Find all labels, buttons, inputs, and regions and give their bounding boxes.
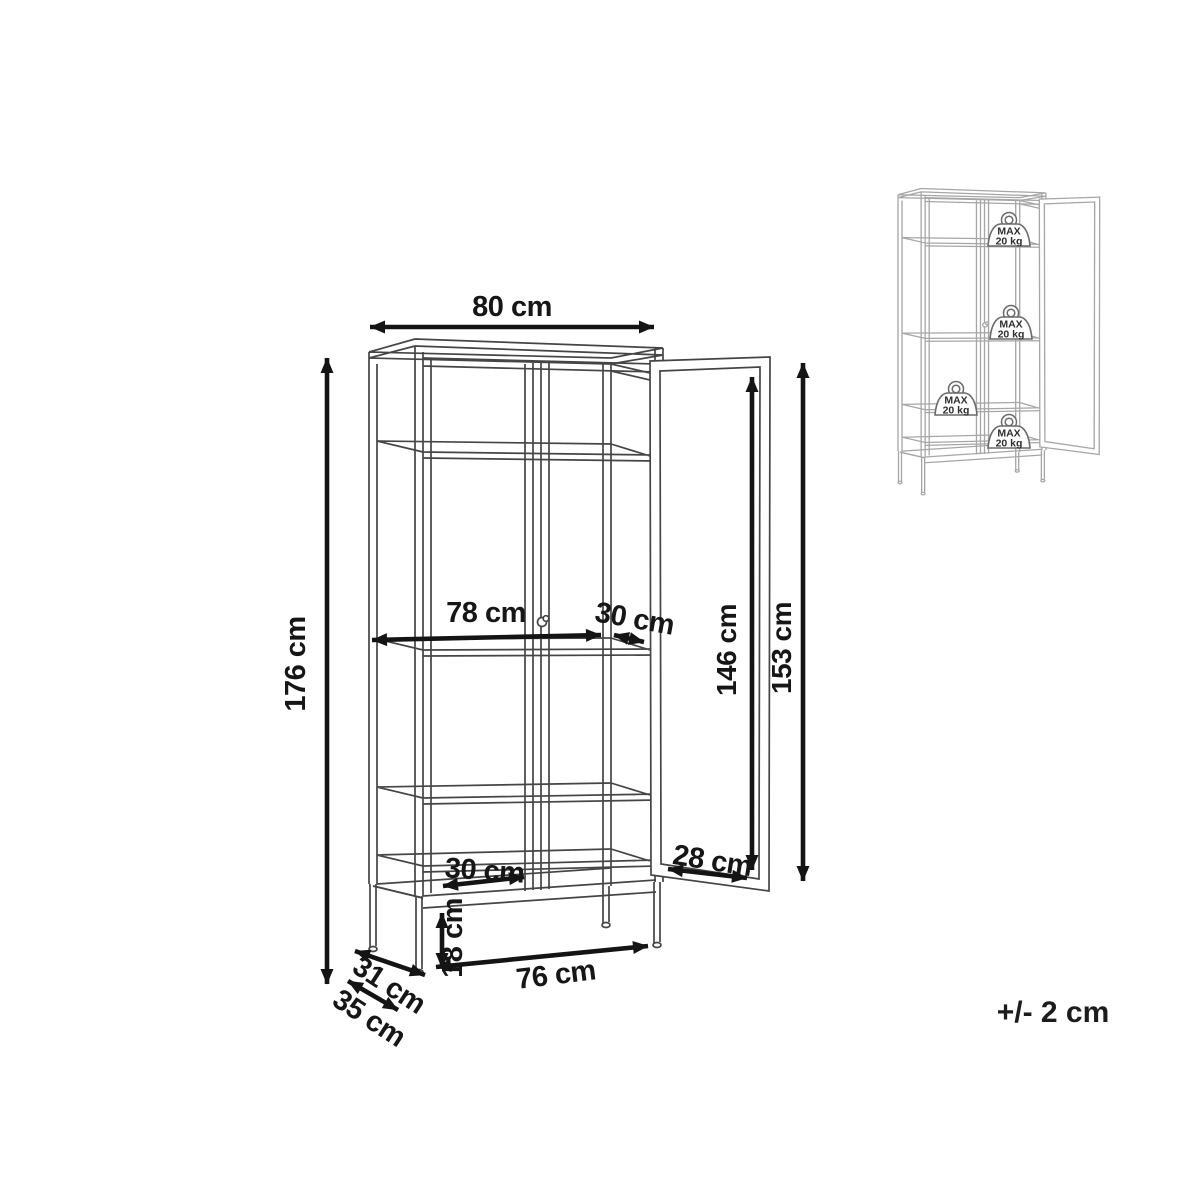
dimension-interior-width: 78 cm (372, 597, 601, 640)
dimension-label-top-width: 80 cm (472, 291, 552, 323)
inset-diagram: MAX 20 kg MAX 20 kg MAX 20 kg MAX 20 kg (898, 188, 1100, 494)
dimension-top-width: 80 cm (370, 291, 654, 327)
weight-max-load-icon: MAX 20 kg (990, 306, 1032, 341)
tolerance-note: +/- 2 cm (997, 996, 1110, 1029)
dimension-label-interior-width: 78 cm (446, 597, 526, 629)
main-cabinet-drawing (369, 339, 770, 975)
weight-label-kg: 20 kg (943, 405, 970, 417)
weight-label-kg: 20 kg (996, 438, 1023, 450)
dimension-door-height: 153 cm (766, 363, 803, 881)
dimension-total-height: 176 cm (280, 358, 327, 984)
dimension-label-total-height: 176 cm (280, 616, 312, 711)
dimension-label-door-glass-height: 146 cm (711, 604, 742, 696)
dimension-label-door-height: 153 cm (766, 602, 797, 694)
weight-label-kg: 20 kg (998, 329, 1025, 341)
weight-label-kg: 20 kg (996, 236, 1023, 248)
weight-max-load-icon: MAX 20 kg (988, 213, 1030, 248)
furniture-dimension-diagram: MAX 20 kg MAX 20 kg MAX 20 kg MAX 20 kg (0, 0, 1200, 1200)
dimension-label-front-leg-span: 76 cm (514, 954, 597, 995)
dimension-bottom-shelf-depth: 30 cm (443, 852, 526, 889)
weight-max-load-icon: MAX 20 kg (988, 415, 1030, 450)
diagram-canvas: MAX 20 kg MAX 20 kg MAX 20 kg MAX 20 kg (0, 0, 1200, 1200)
weight-max-load-icon: MAX 20 kg (935, 382, 977, 417)
dimension-label-bottom-shelf-depth: 30 cm (444, 852, 526, 889)
